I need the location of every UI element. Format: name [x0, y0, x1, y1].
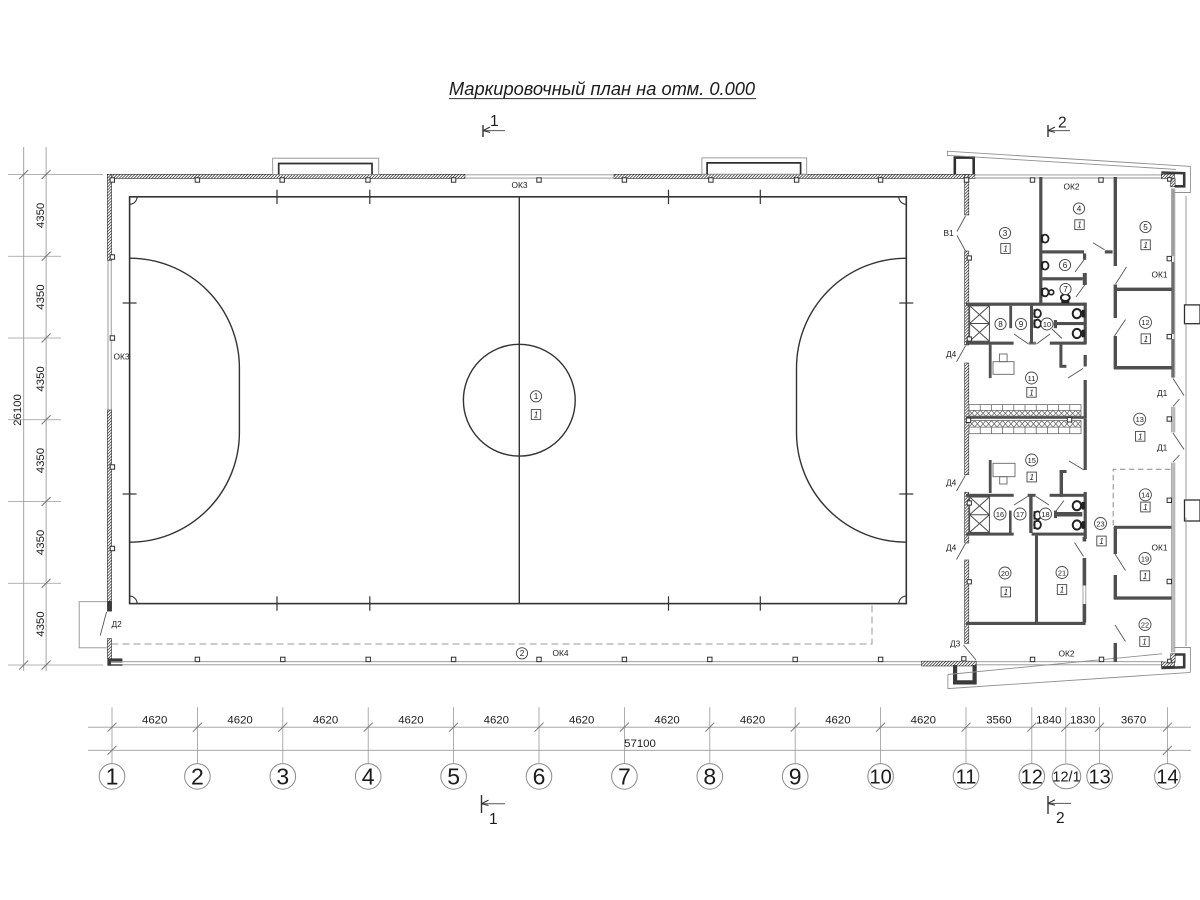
svg-text:4620: 4620 [911, 715, 936, 727]
svg-text:4620: 4620 [398, 715, 423, 727]
svg-text:15: 15 [1028, 456, 1036, 465]
svg-text:2: 2 [1058, 115, 1067, 132]
svg-text:4: 4 [1077, 204, 1082, 213]
svg-text:1: 1 [106, 764, 119, 790]
svg-text:19: 19 [1141, 554, 1149, 563]
svg-text:6: 6 [1063, 261, 1068, 270]
svg-text:8: 8 [998, 320, 1003, 329]
svg-text:ОК1: ОК1 [1152, 270, 1168, 280]
svg-text:5: 5 [447, 764, 460, 790]
svg-text:7: 7 [1063, 285, 1068, 294]
svg-text:Д1: Д1 [1157, 388, 1168, 398]
svg-text:2: 2 [1056, 810, 1065, 827]
svg-text:4620: 4620 [313, 715, 338, 727]
svg-text:26100: 26100 [12, 394, 24, 426]
svg-text:4350: 4350 [35, 611, 47, 636]
svg-text:3: 3 [276, 764, 289, 790]
svg-text:4620: 4620 [654, 715, 679, 727]
svg-text:11: 11 [956, 767, 977, 789]
svg-text:1: 1 [1144, 335, 1148, 344]
svg-text:14: 14 [1156, 767, 1178, 789]
svg-text:9: 9 [1019, 320, 1024, 329]
svg-text:ОК3: ОК3 [512, 180, 528, 190]
svg-text:Д3: Д3 [950, 639, 961, 649]
svg-text:1840: 1840 [1036, 715, 1061, 727]
svg-text:23: 23 [1096, 519, 1104, 528]
svg-text:Д4: Д4 [946, 478, 957, 488]
svg-text:ОК2: ОК2 [1064, 182, 1080, 192]
svg-text:9: 9 [789, 764, 802, 790]
svg-text:ОК2: ОК2 [1059, 649, 1075, 659]
svg-text:20: 20 [1001, 569, 1009, 578]
svg-text:14: 14 [1141, 491, 1149, 500]
svg-text:1: 1 [1099, 537, 1103, 546]
svg-text:1830: 1830 [1070, 715, 1095, 727]
svg-text:4350: 4350 [35, 366, 47, 391]
svg-text:4620: 4620 [740, 715, 765, 727]
svg-text:3560: 3560 [986, 715, 1011, 727]
svg-text:21: 21 [1058, 568, 1066, 577]
svg-text:12/1: 12/1 [1052, 769, 1080, 785]
svg-text:1: 1 [1143, 503, 1147, 512]
svg-text:1: 1 [1143, 241, 1147, 250]
svg-text:57100: 57100 [624, 738, 656, 750]
svg-text:3670: 3670 [1121, 715, 1146, 727]
svg-text:4350: 4350 [35, 284, 47, 309]
svg-text:1: 1 [1003, 245, 1007, 254]
svg-text:13: 13 [1088, 767, 1110, 789]
svg-text:1: 1 [490, 113, 499, 130]
svg-text:4350: 4350 [35, 203, 47, 228]
svg-text:Д2: Д2 [112, 619, 123, 629]
svg-text:6: 6 [533, 764, 546, 790]
svg-text:Д4: Д4 [946, 543, 957, 553]
svg-text:ОК4: ОК4 [553, 648, 569, 658]
svg-text:4620: 4620 [142, 715, 167, 727]
svg-text:В1: В1 [944, 228, 955, 238]
svg-text:8: 8 [703, 764, 716, 790]
svg-text:22: 22 [1141, 620, 1149, 629]
svg-text:Маркировочный план на отм. 0.0: Маркировочный план на отм. 0.000 [449, 78, 756, 99]
svg-text:18: 18 [1041, 510, 1049, 519]
svg-text:4620: 4620 [484, 715, 509, 727]
svg-text:12: 12 [1021, 767, 1043, 789]
svg-text:4620: 4620 [569, 715, 594, 727]
svg-text:7: 7 [618, 764, 631, 790]
svg-text:10: 10 [869, 767, 891, 789]
svg-text:5: 5 [1143, 223, 1148, 232]
svg-text:4350: 4350 [35, 530, 47, 555]
svg-text:1: 1 [1029, 388, 1033, 397]
svg-text:13: 13 [1136, 415, 1144, 424]
svg-text:1: 1 [1029, 473, 1033, 482]
svg-text:1: 1 [1142, 638, 1146, 647]
svg-text:1: 1 [1143, 572, 1147, 581]
svg-text:Д1: Д1 [1157, 443, 1168, 453]
svg-text:2: 2 [191, 764, 204, 790]
svg-text:ОК3: ОК3 [114, 352, 130, 362]
svg-text:1: 1 [1004, 588, 1008, 597]
svg-text:10: 10 [1043, 320, 1051, 329]
svg-text:Д4: Д4 [946, 349, 957, 359]
svg-text:1: 1 [1060, 586, 1064, 595]
svg-text:1: 1 [489, 811, 498, 828]
svg-text:4620: 4620 [825, 715, 850, 727]
svg-text:2: 2 [520, 649, 525, 658]
svg-text:17: 17 [1016, 510, 1024, 519]
svg-text:4: 4 [362, 764, 375, 790]
svg-text:1: 1 [534, 411, 538, 420]
svg-text:3: 3 [1003, 229, 1008, 238]
svg-text:1: 1 [1077, 221, 1081, 230]
svg-text:1: 1 [1138, 432, 1142, 441]
svg-text:11: 11 [1028, 374, 1036, 383]
svg-text:4350: 4350 [35, 448, 47, 473]
svg-text:4620: 4620 [227, 715, 252, 727]
svg-text:16: 16 [996, 510, 1004, 519]
svg-text:12: 12 [1141, 318, 1149, 327]
svg-text:1: 1 [534, 392, 539, 401]
svg-text:ОК1: ОК1 [1152, 543, 1168, 553]
